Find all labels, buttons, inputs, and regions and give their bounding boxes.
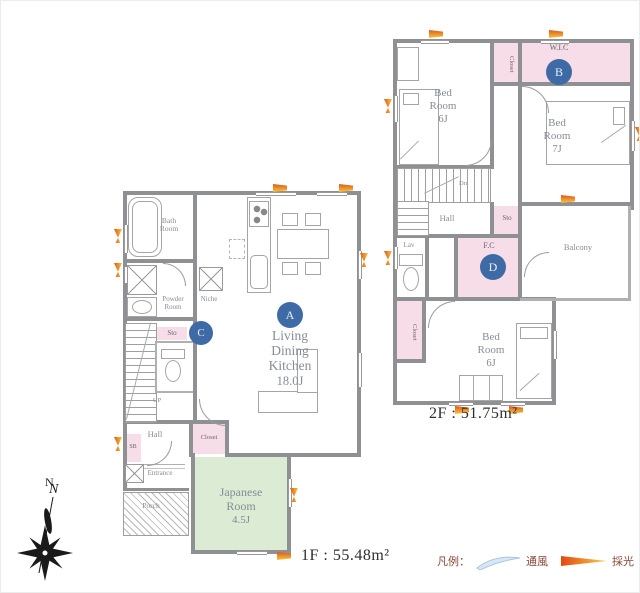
ldk-label: Living Dining Kitchen 18.0J bbox=[247, 328, 333, 389]
daylight-marker bbox=[429, 30, 443, 38]
vanity-basin bbox=[132, 300, 152, 314]
dining-table bbox=[277, 229, 329, 259]
door-arc bbox=[163, 263, 186, 286]
powder-room-label: PowderRoom bbox=[151, 296, 195, 311]
daylight-marker bbox=[384, 99, 392, 113]
wall bbox=[123, 488, 189, 491]
closet-2f-top-label: Closet bbox=[499, 45, 515, 83]
floor1-area-label: 1F : 55.48m² bbox=[301, 547, 421, 565]
storage-1f-label: Sto bbox=[157, 330, 187, 338]
legend-light-label: 採光 bbox=[612, 553, 634, 569]
sofa bbox=[258, 391, 318, 413]
window bbox=[553, 331, 557, 359]
toilet-bowl bbox=[403, 267, 419, 291]
desk bbox=[459, 375, 503, 401]
wall bbox=[229, 453, 361, 457]
powder-line2: Room bbox=[164, 303, 181, 311]
up-label: UP bbox=[147, 397, 167, 404]
daylight-marker bbox=[384, 251, 392, 265]
door-arc bbox=[524, 252, 549, 277]
bedroom-nw-line2: Room bbox=[430, 100, 457, 112]
japanese-line1: Japanese bbox=[220, 485, 263, 499]
toilet-bowl bbox=[165, 360, 181, 382]
bath-room-label: BathRoom bbox=[141, 217, 197, 234]
window bbox=[256, 192, 296, 196]
legend: 凡例： 通風 採光 bbox=[437, 552, 634, 570]
bedroom-nw-line1: Bed bbox=[434, 87, 452, 99]
wall bbox=[490, 39, 494, 169]
floor2-area-label: 2F : 51.75m² bbox=[429, 405, 549, 423]
down-label: Dn bbox=[453, 180, 473, 187]
daylight-marker bbox=[114, 263, 122, 277]
bedroom-e-label: Bed Room 7J bbox=[534, 117, 580, 156]
pillow bbox=[403, 93, 419, 105]
photo-marker-b: B bbox=[546, 59, 572, 85]
wall bbox=[123, 317, 197, 321]
window bbox=[237, 551, 267, 555]
bedroom-e-size: 7J bbox=[552, 144, 561, 155]
photo-marker-a: A bbox=[277, 302, 303, 328]
bedroom-s-size: 6J bbox=[486, 358, 495, 369]
wall bbox=[518, 82, 522, 301]
window bbox=[421, 40, 449, 44]
daylight-marker bbox=[114, 437, 122, 451]
chair bbox=[305, 213, 321, 226]
desk bbox=[397, 47, 419, 81]
wall bbox=[518, 202, 634, 206]
staircase-2f bbox=[397, 201, 429, 236]
shoebox-label: SB bbox=[125, 444, 141, 451]
wall bbox=[454, 238, 458, 301]
door-arc bbox=[147, 441, 172, 466]
window bbox=[631, 121, 635, 151]
window bbox=[394, 247, 398, 269]
floor-plan-image: BathRoom PowderRoom Niche Sto UP Hall Cl… bbox=[0, 0, 640, 593]
wall bbox=[191, 453, 195, 554]
bedroom-s-line2: Room bbox=[478, 344, 505, 356]
japanese-line2: Room bbox=[226, 499, 255, 513]
bedroom-s-line1: Bed bbox=[482, 331, 500, 343]
lavatory-label: Lav bbox=[395, 242, 423, 250]
door-arc bbox=[428, 301, 455, 328]
ldk-line3: Kitchen bbox=[269, 358, 312, 373]
balcony-rail bbox=[628, 206, 631, 301]
fc-label: F.C bbox=[469, 242, 509, 251]
ldk-line1: Living bbox=[272, 328, 308, 343]
entrance-label: Entrance bbox=[131, 470, 189, 478]
window bbox=[394, 96, 398, 122]
wall bbox=[425, 234, 429, 301]
porch-label: Porch bbox=[127, 502, 175, 510]
closet-2f-south-label: Closet bbox=[402, 311, 418, 353]
staircase-1f bbox=[125, 323, 157, 423]
toilet-tank bbox=[161, 349, 185, 359]
bedroom-nw-label: Bed Room 6J bbox=[421, 87, 465, 126]
storage-2f-label: Sto bbox=[493, 215, 521, 223]
wall bbox=[357, 191, 361, 457]
ldk-size: 18.0J bbox=[277, 374, 304, 388]
photo-marker-d: D bbox=[480, 254, 506, 280]
photo-marker-c: C bbox=[189, 321, 213, 345]
hall-1f-label: Hall bbox=[135, 430, 175, 439]
sink bbox=[250, 255, 268, 289]
wall bbox=[422, 301, 426, 361]
niche-label: Niche bbox=[191, 296, 227, 304]
door-arc bbox=[465, 139, 492, 166]
window bbox=[288, 479, 292, 507]
bedroom-e-line1: Bed bbox=[548, 117, 566, 129]
window bbox=[317, 192, 347, 196]
daylight-marker bbox=[114, 229, 122, 243]
chair bbox=[282, 262, 298, 275]
daylight-arrow-icon bbox=[561, 554, 607, 568]
wall bbox=[393, 359, 426, 363]
hall-2f-label: Hall bbox=[429, 214, 465, 223]
bedroom-e-line2: Room bbox=[544, 130, 571, 142]
bath-line2: Room bbox=[160, 224, 178, 233]
door-arc bbox=[522, 86, 549, 113]
legend-wind-label: 通風 bbox=[526, 553, 548, 569]
wall bbox=[123, 259, 197, 263]
daylight-marker bbox=[635, 127, 640, 141]
daylight-marker bbox=[549, 30, 563, 38]
washer-space bbox=[127, 265, 157, 295]
desk-divider bbox=[489, 375, 490, 401]
toilet-tank bbox=[399, 254, 423, 266]
pillow bbox=[613, 107, 625, 125]
ldk-line2: Dining bbox=[271, 343, 309, 358]
japanese-size: 4.5J bbox=[232, 514, 250, 526]
balcony-label: Balcony bbox=[548, 243, 608, 252]
staircase-2f bbox=[397, 168, 491, 203]
bedroom-nw-size: 6J bbox=[438, 114, 447, 125]
chair bbox=[305, 262, 321, 275]
refrigerator-space bbox=[229, 239, 245, 259]
pillow bbox=[520, 327, 548, 339]
chair bbox=[282, 213, 298, 226]
wind-swoosh-icon bbox=[475, 552, 521, 570]
wall bbox=[518, 39, 522, 86]
japanese-room-label: Japanese Room 4.5J bbox=[197, 486, 285, 528]
porch-area bbox=[123, 492, 189, 536]
compass-north-label: N bbox=[45, 475, 61, 490]
bedroom-s-label: Bed Room 6J bbox=[467, 331, 515, 370]
closet-1f-label: Closet bbox=[193, 434, 225, 441]
niche-storage bbox=[199, 267, 223, 291]
legend-title: 凡例： bbox=[437, 553, 470, 569]
desk-divider bbox=[473, 375, 474, 401]
window bbox=[358, 353, 362, 387]
stove bbox=[249, 201, 269, 227]
wic-label: W.I.C bbox=[535, 44, 583, 53]
balcony-rail bbox=[520, 298, 631, 301]
